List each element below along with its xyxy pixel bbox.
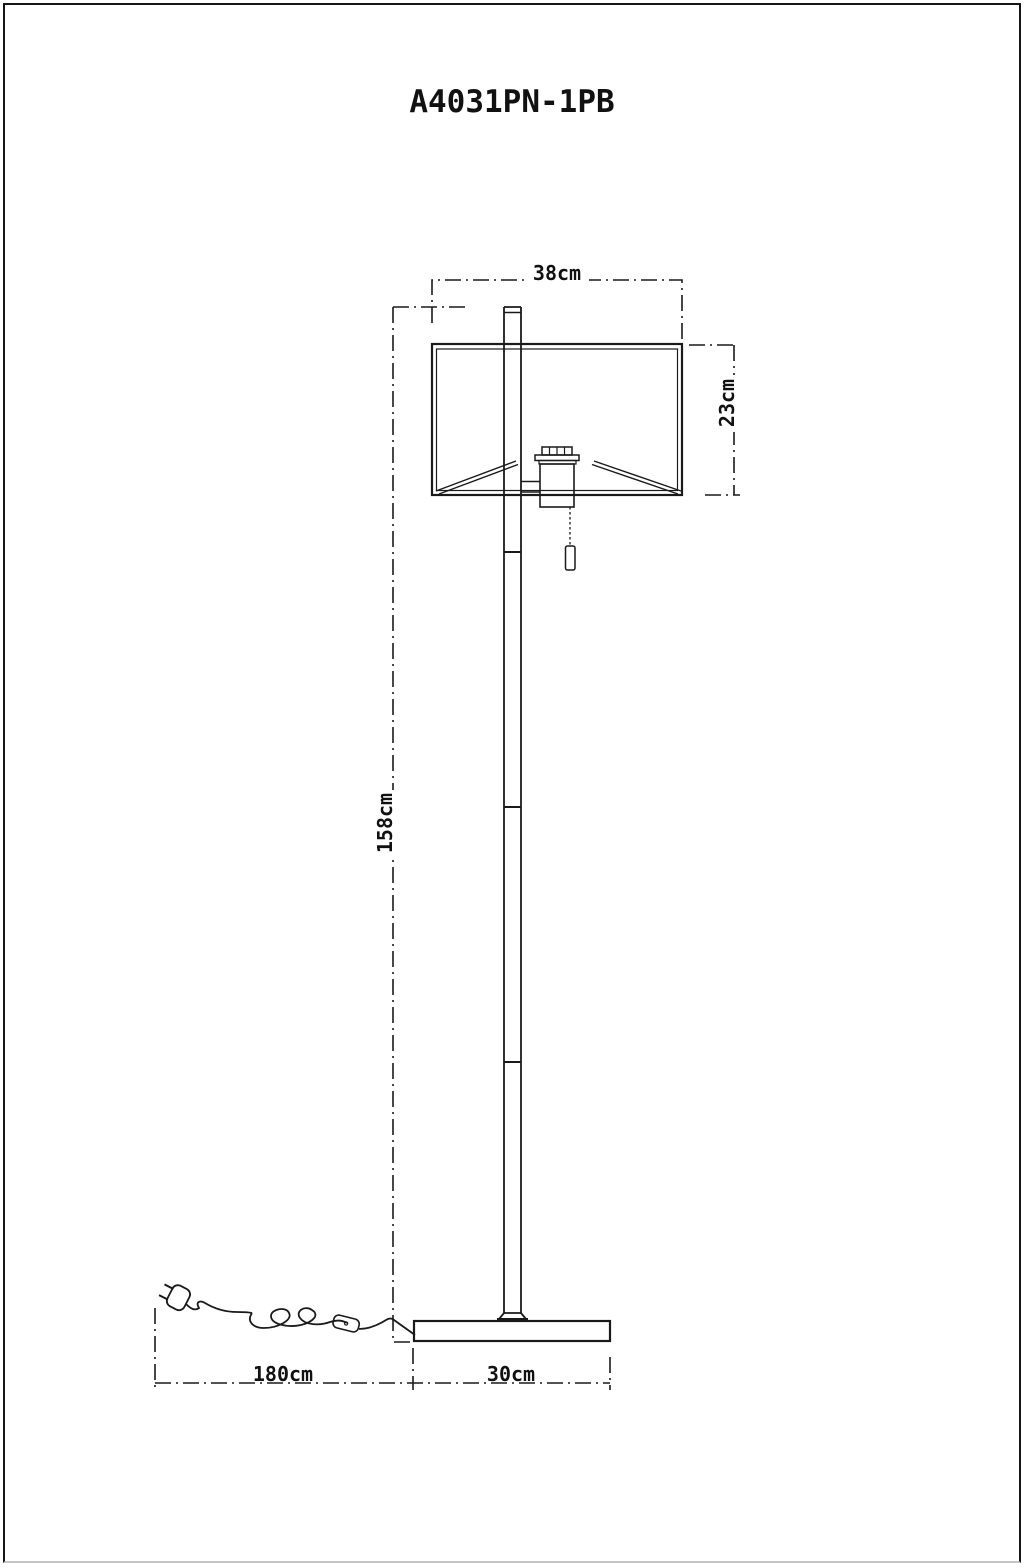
pull-chain (566, 507, 576, 570)
lamp-shade (432, 344, 682, 495)
power-plug (157, 1279, 192, 1312)
diffuser-right-slant-2 (592, 465, 678, 495)
dimension-23cm: 23cm (689, 345, 740, 495)
shade-outer (432, 344, 682, 495)
dim-line-38cm (432, 280, 682, 343)
dim-label-lamp-height: 158cm (373, 793, 397, 853)
socket-body (540, 464, 574, 507)
socket-top-plate (535, 455, 579, 461)
dim-label-cord-length: 180cm (253, 1362, 313, 1386)
lamp-pole (504, 307, 521, 1314)
cord-coil (250, 1308, 347, 1328)
dim-label-shade-height: 23cm (715, 379, 739, 427)
lamp-base (414, 1313, 610, 1341)
lamp-technical-drawing: 38cm 23cm 158cm 180cm 30cm (0, 0, 1024, 1568)
pull-chain-handle (566, 546, 576, 570)
socket-assembly (521, 447, 579, 507)
diffuser-right-slant (594, 461, 681, 491)
cord-segment-1 (186, 1302, 252, 1313)
power-cord (157, 1279, 415, 1335)
diffuser-left-slant-2 (439, 465, 518, 495)
socket-cap-ribs (550, 447, 565, 455)
dim-label-base-width: 30cm (487, 1362, 535, 1386)
shade-inner (437, 349, 678, 491)
dim-label-shade-width: 38cm (533, 261, 581, 285)
dimension-158cm: 158cm (373, 307, 470, 1342)
drawing-page: A4031PN-1PB 38cm 23cm 158cm 18 (0, 0, 1024, 1568)
base-plate (414, 1321, 610, 1341)
cord-segment-2 (359, 1319, 415, 1336)
dimension-38cm: 38cm (432, 260, 682, 343)
